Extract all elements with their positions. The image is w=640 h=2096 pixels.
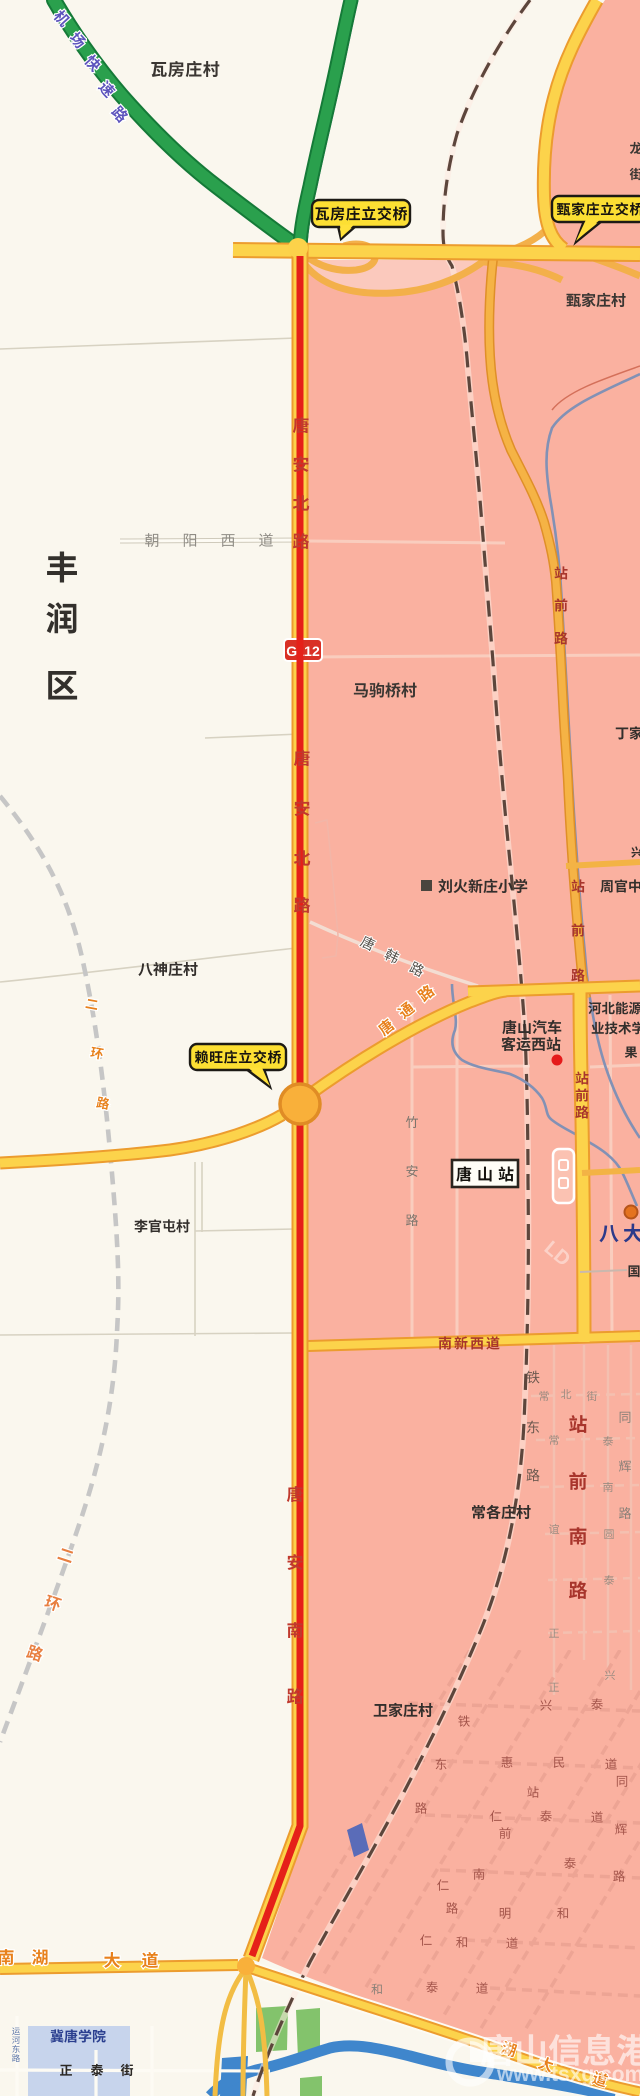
svg-text:www.tsxg.com: www.tsxg.com [496, 2063, 640, 2086]
